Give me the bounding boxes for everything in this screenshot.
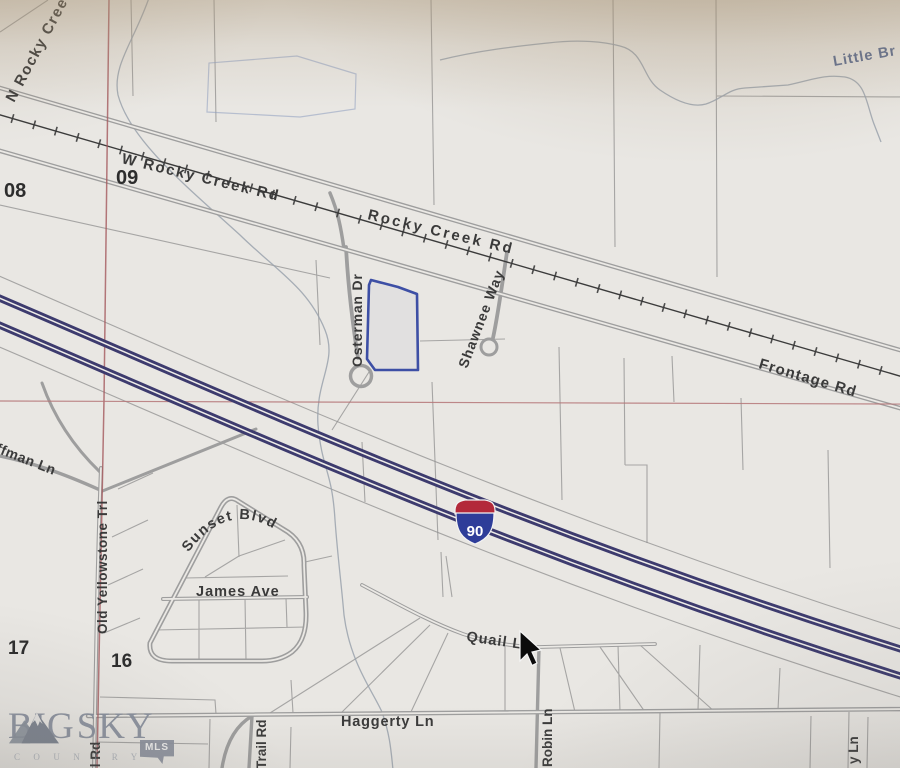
label-y-ln: y Ln	[846, 736, 861, 764]
big-sky-mls-logo: BIG SKY C O U N T R Y MLS	[8, 710, 188, 766]
label-huffman-ln: ffman Ln	[0, 440, 58, 478]
map-canvas[interactable]: 90 N Rocky Cree W Rocky Creek Rd Rocky C…	[0, 0, 900, 768]
shield-top-band	[455, 500, 495, 514]
section-number-17: 17	[8, 638, 29, 659]
shawnee-culdesac	[481, 339, 497, 355]
svg-text:Sunset Blvd: Sunset Blvd	[179, 507, 280, 555]
label-james-ave: James Ave	[196, 584, 280, 600]
mls-badge: MLS	[140, 740, 174, 764]
shield-route-number: 90	[467, 523, 484, 540]
section-number-16: 16	[111, 651, 132, 672]
road-nw-diagonal	[100, 429, 256, 492]
road-trail	[222, 716, 252, 768]
road-robin	[536, 648, 539, 768]
logo-word-sky: SKY	[77, 710, 154, 744]
i90-north-lanes	[0, 294, 900, 652]
label-sunset-blvd: Sunset Blvd	[179, 507, 280, 555]
logo-country-text: C O U N T R Y	[14, 752, 143, 762]
stream-line	[117, 0, 393, 768]
label-trail-rd: Trail Rd	[254, 719, 269, 768]
interstate-90	[0, 294, 900, 679]
road-connector	[330, 193, 344, 249]
label-frontage-rd: Frontage Rd	[757, 356, 859, 401]
mountain-icon	[8, 710, 60, 746]
stream-lines	[117, 0, 881, 768]
section-number-08: 08	[4, 180, 26, 202]
label-old-yellowstone-trl: Old Yellowstone Trl	[95, 500, 110, 634]
label-haggerty-ln: Haggerty Ln	[341, 714, 434, 730]
section-line-horizontal	[0, 401, 900, 404]
i90-shield: 90	[455, 500, 495, 544]
boundary-polygon	[207, 56, 356, 117]
section-number-09: 09	[116, 167, 138, 189]
parcel-map[interactable]: 90 N Rocky Cree W Rocky Creek Rd Rocky C…	[0, 0, 900, 768]
osterman-culdesac	[351, 366, 372, 387]
road-huffman-curve	[42, 383, 100, 472]
label-w-rocky-creek-rd: W Rocky Creek Rd	[120, 150, 282, 204]
i90-south-lanes	[0, 321, 900, 679]
highlighted-parcel[interactable]	[367, 280, 418, 370]
label-robin-ln: Robin Ln	[540, 709, 555, 767]
label-n-rocky-creek: N Rocky Cree	[3, 0, 72, 105]
label-little-br: Little Br	[832, 43, 898, 70]
little-br-creek	[440, 41, 881, 142]
label-osterman-dr: Osterman Dr	[349, 273, 365, 367]
mls-badge-text: MLS	[145, 742, 169, 753]
